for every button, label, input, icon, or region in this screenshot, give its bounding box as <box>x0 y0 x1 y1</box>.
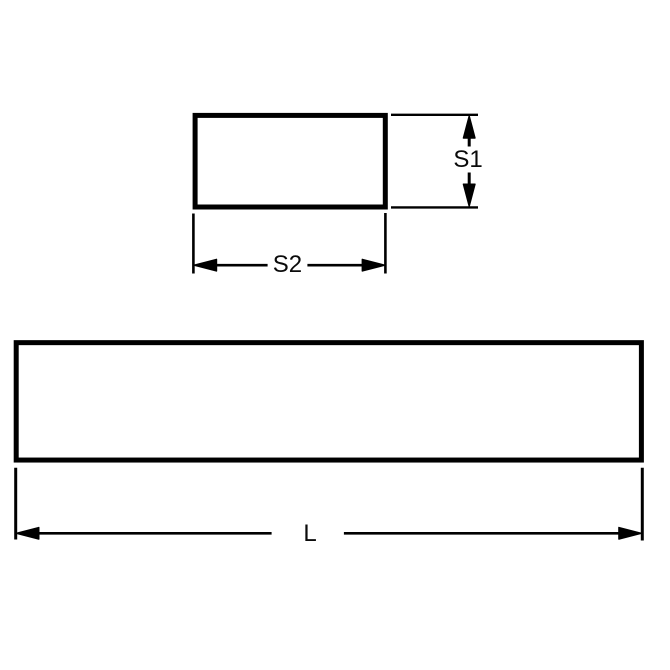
svg-text:S1: S1 <box>453 146 482 173</box>
svg-text:S2: S2 <box>273 251 302 278</box>
svg-text:L: L <box>303 520 316 547</box>
